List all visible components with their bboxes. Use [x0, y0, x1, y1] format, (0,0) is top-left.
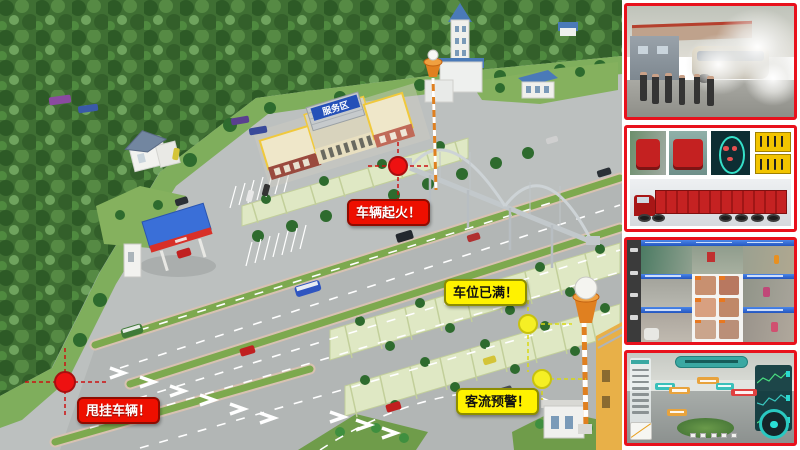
page-dot[interactable] [731, 433, 737, 438]
camera-title-bar [641, 274, 692, 280]
feature-point [723, 146, 728, 150]
text-line [632, 405, 649, 407]
white-car [644, 328, 659, 340]
alert-label-trailer-swap[interactable]: 甩挂车辆！ [77, 397, 160, 424]
captured-face [695, 298, 715, 316]
camera-title [645, 309, 681, 311]
face-wireframe [719, 136, 745, 174]
red-truck-cab [636, 139, 660, 167]
camera-tile [692, 240, 743, 274]
camera-title [747, 275, 783, 277]
camera-item [630, 315, 639, 319]
face-badge [695, 276, 701, 279]
page-dot[interactable] [711, 433, 717, 438]
red-truck-rear [673, 139, 702, 167]
semi-trailer-photo [630, 179, 792, 226]
person-figure [679, 75, 686, 105]
captured-face [695, 320, 715, 338]
face-badge [719, 298, 725, 301]
person-figure [694, 74, 701, 104]
smart-parking-ar-monitor-photo[interactable] [624, 350, 797, 446]
page-dot[interactable] [690, 433, 696, 438]
truck-rear-photo [669, 131, 707, 175]
trend-chart [757, 391, 790, 409]
camera-title [645, 242, 681, 244]
face-badge [695, 298, 701, 301]
service-area-3d-scene: 服务区 [0, 0, 622, 450]
camera-list-sidebar [627, 240, 641, 342]
cab-window [637, 197, 650, 203]
feature-point [727, 157, 732, 161]
alert-label-passenger-flow[interactable]: 客流预警！ [456, 388, 539, 415]
trailer-body [655, 190, 787, 214]
yellow-plate [755, 154, 791, 174]
far-building [596, 322, 622, 450]
yellow-plate [755, 132, 791, 152]
wheel [767, 214, 780, 222]
captured-face [719, 320, 739, 338]
face-badge [695, 320, 701, 323]
wheel [719, 214, 732, 222]
ar-tag-orange[interactable] [667, 409, 687, 416]
person-figure [652, 74, 659, 104]
camera-item [630, 248, 639, 252]
panel-dot [786, 395, 790, 401]
wheel [652, 214, 665, 222]
camera-title [747, 242, 783, 244]
text-line [632, 381, 649, 383]
camera-tile [641, 307, 692, 342]
captured-face [719, 276, 739, 294]
mini-map[interactable] [630, 422, 652, 440]
feature-point [732, 146, 737, 150]
alert-label-vehicle-fire[interactable]: 车辆起火！ [347, 199, 430, 226]
text-line [632, 387, 649, 389]
truck-cab [634, 195, 655, 216]
passenger-alert-dot[interactable] [533, 370, 551, 388]
camera-tile [641, 240, 692, 274]
person-figure [640, 72, 647, 102]
wheel [638, 214, 651, 222]
camera-title-bar [743, 274, 794, 280]
camera-item [630, 271, 639, 275]
camera-title-bar [641, 307, 692, 313]
camera-title-bar [641, 240, 692, 246]
person-figure [665, 73, 672, 103]
vehicle-fire-drill-photo[interactable] [624, 3, 797, 120]
camera-title [696, 242, 732, 244]
alert-label-parking-full[interactable]: 车位已满！ [444, 279, 527, 306]
captured-face [695, 276, 715, 294]
trend-chart [757, 369, 790, 387]
camera-title [645, 275, 681, 277]
person-figure [707, 76, 714, 106]
service-area-monitoring-slide: 服务区 [0, 0, 800, 450]
text-line [632, 399, 649, 401]
face-capture-panel [692, 274, 743, 342]
parking-alert-dot[interactable] [519, 315, 537, 333]
smoke-cloud [744, 50, 797, 106]
ar-tag-orange[interactable] [669, 387, 691, 394]
text-line [632, 375, 649, 377]
camera-title-bar [743, 240, 794, 246]
fire-alert-dot[interactable] [389, 157, 407, 175]
banner-title [685, 360, 738, 363]
ar-tag-red[interactable] [731, 389, 758, 396]
motorbike-rider [763, 287, 769, 296]
wheel [751, 214, 764, 222]
camera-tile [743, 307, 794, 342]
truck-front-photo [630, 131, 667, 175]
window [638, 46, 649, 54]
camera-title [747, 309, 783, 311]
gauge-dot [770, 421, 777, 428]
surveillance-face-grid-photo[interactable] [624, 237, 797, 345]
camera-tile [641, 274, 692, 308]
header-banner [675, 356, 747, 368]
page-dot[interactable] [700, 433, 706, 438]
face-badge [719, 320, 725, 323]
page-dot[interactable] [721, 433, 727, 438]
captured-face [719, 298, 739, 316]
camera-title-bar [743, 307, 794, 313]
text-line [632, 369, 649, 371]
pedestrian [774, 255, 779, 263]
panel-dot [786, 371, 790, 377]
face-badge [719, 276, 725, 279]
camera-tile [743, 274, 794, 308]
pedestrian [771, 322, 778, 332]
trailer-alert-dot[interactable] [55, 372, 75, 392]
window [657, 46, 668, 54]
route-line [631, 424, 652, 439]
license-plates [753, 131, 791, 175]
truck-license-recognition-photo[interactable] [624, 125, 797, 232]
text-line [632, 393, 649, 395]
face-recognition-panel [711, 131, 750, 175]
text-line [632, 411, 649, 413]
red-banner [707, 252, 714, 262]
camera-item [630, 293, 639, 297]
wheel [735, 214, 748, 222]
camera-title-bar [692, 240, 743, 246]
camera-tile [743, 240, 794, 274]
panel-header [631, 360, 649, 365]
